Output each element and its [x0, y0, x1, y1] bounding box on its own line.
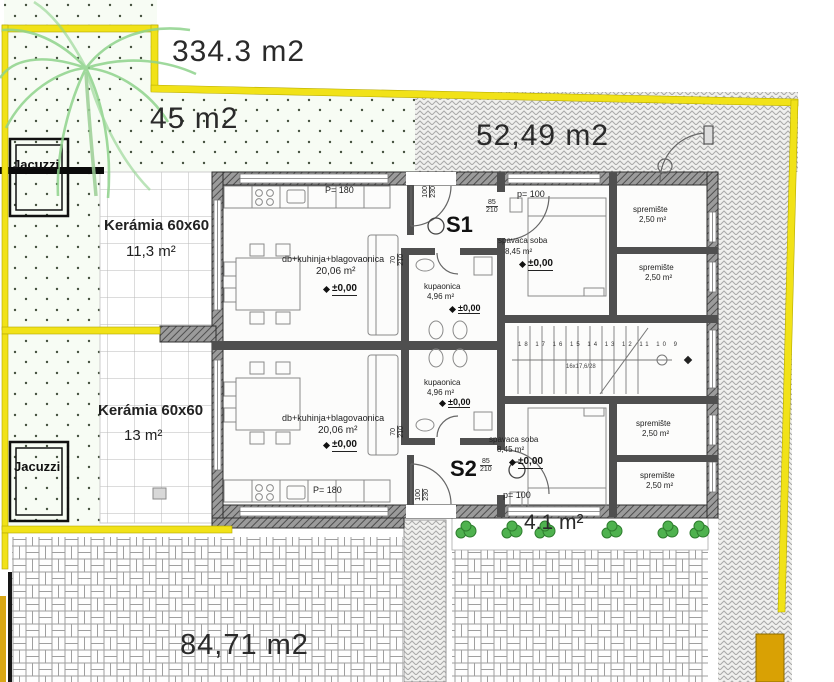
s1-bedroom-window-label: p= 100 — [517, 190, 545, 199]
s1-bath-area: 4,96 m² — [427, 293, 454, 301]
edge-line-bottom-left — [8, 572, 12, 682]
s1-living-name: db+kuhinja+blagovaonica — [282, 255, 384, 264]
s1-bath-door-size: 70210 — [390, 254, 406, 266]
s2-bedroom-level: ±0,00 — [510, 457, 543, 469]
s1-living-area: 20,06 m² — [316, 267, 355, 278]
s1-living-level: ±0,00 — [324, 284, 357, 296]
s1-bedroom-area: 8,45 m² — [505, 248, 532, 256]
unit-s1-label: S1 — [446, 213, 473, 236]
total-area-label: 334.3 m2 — [172, 36, 305, 68]
green-strip-area-label: 4.1 m² — [524, 512, 584, 534]
keramia-top-area: 11,3 m² — [126, 244, 176, 260]
s2-storage-a-name: spremište — [636, 420, 671, 428]
jacuzzi-top-label: Jacuzzi — [13, 158, 59, 172]
s2-storage-b-area: 2,50 m² — [646, 482, 673, 490]
jacuzzi-bottom — [10, 442, 68, 521]
keramia-top-label: Kerámia 60x60 — [104, 218, 209, 234]
floor-plan: 334.3 m2 45 m2 52,49 m2 84,71 m2 4.1 m² … — [0, 0, 834, 682]
s2-bedroom-name: spavaca soba — [489, 436, 538, 444]
stairs-spec: 16x17,6/28 — [566, 364, 596, 370]
s2-living-name: db+kuhinja+blagovaonica — [282, 414, 384, 423]
s1-storage-b-name: spremište — [639, 264, 674, 272]
s2-entry-size: 100230 — [415, 489, 431, 501]
s1-bath-level: ±0,00 — [450, 304, 480, 314]
s2-living-area: 20,06 m² — [318, 426, 357, 437]
s2-kitchen-window-label: P= 180 — [313, 486, 342, 495]
s2-bedroom-window-label: p= 100 — [503, 491, 531, 500]
s1-bath-name: kupaonica — [424, 283, 460, 291]
s1-kitchen-window-label: P= 180 — [325, 186, 354, 195]
unit-s2-label: S2 — [450, 457, 477, 480]
orange-strip-left — [0, 596, 6, 682]
s2-bath-level: ±0,00 — [440, 398, 470, 408]
s2-door-size: 85210 — [480, 458, 492, 474]
s1-bedroom-level: ±0,00 — [520, 259, 553, 271]
jacuzzi-bottom-label: Jacuzzi — [14, 460, 60, 474]
s1-storage-a-area: 2,50 m² — [639, 216, 666, 224]
s1-bedroom-name: spavaca soba — [498, 237, 547, 245]
s2-bath-door-size: 70210 — [390, 426, 406, 438]
terrace-area-label: 45 m2 — [150, 103, 238, 135]
s1-door-size: 85210 — [486, 199, 498, 215]
s2-bedroom-area: 8,45 m² — [497, 446, 524, 454]
area-brick-paving — [12, 537, 708, 682]
right-yard-area-label: 52,49 m2 — [476, 120, 609, 152]
s2-storage-a-area: 2,50 m² — [642, 430, 669, 438]
orange-gate-bottom-right — [756, 634, 784, 682]
drawing-svg — [0, 0, 834, 682]
s2-living-level: ±0,00 — [324, 440, 357, 452]
keramia-bottom-label: Kerámia 60x60 — [98, 403, 203, 419]
s1-storage-a-name: spremište — [633, 206, 668, 214]
stairs-step-numbers: 18 17 16 15 14 13 12 11 10 9 — [518, 342, 680, 348]
s2-storage-b-name: spremište — [640, 472, 675, 480]
bottom-yard-area-label: 84,71 m2 — [180, 630, 309, 660]
s1-storage-b-area: 2,50 m² — [645, 274, 672, 282]
keramia-bottom-area: 13 m² — [124, 428, 162, 444]
s1-entry-size: 100230 — [422, 186, 438, 198]
jacuzzi-top — [10, 139, 68, 216]
s2-bath-name: kupaonica — [424, 379, 460, 387]
